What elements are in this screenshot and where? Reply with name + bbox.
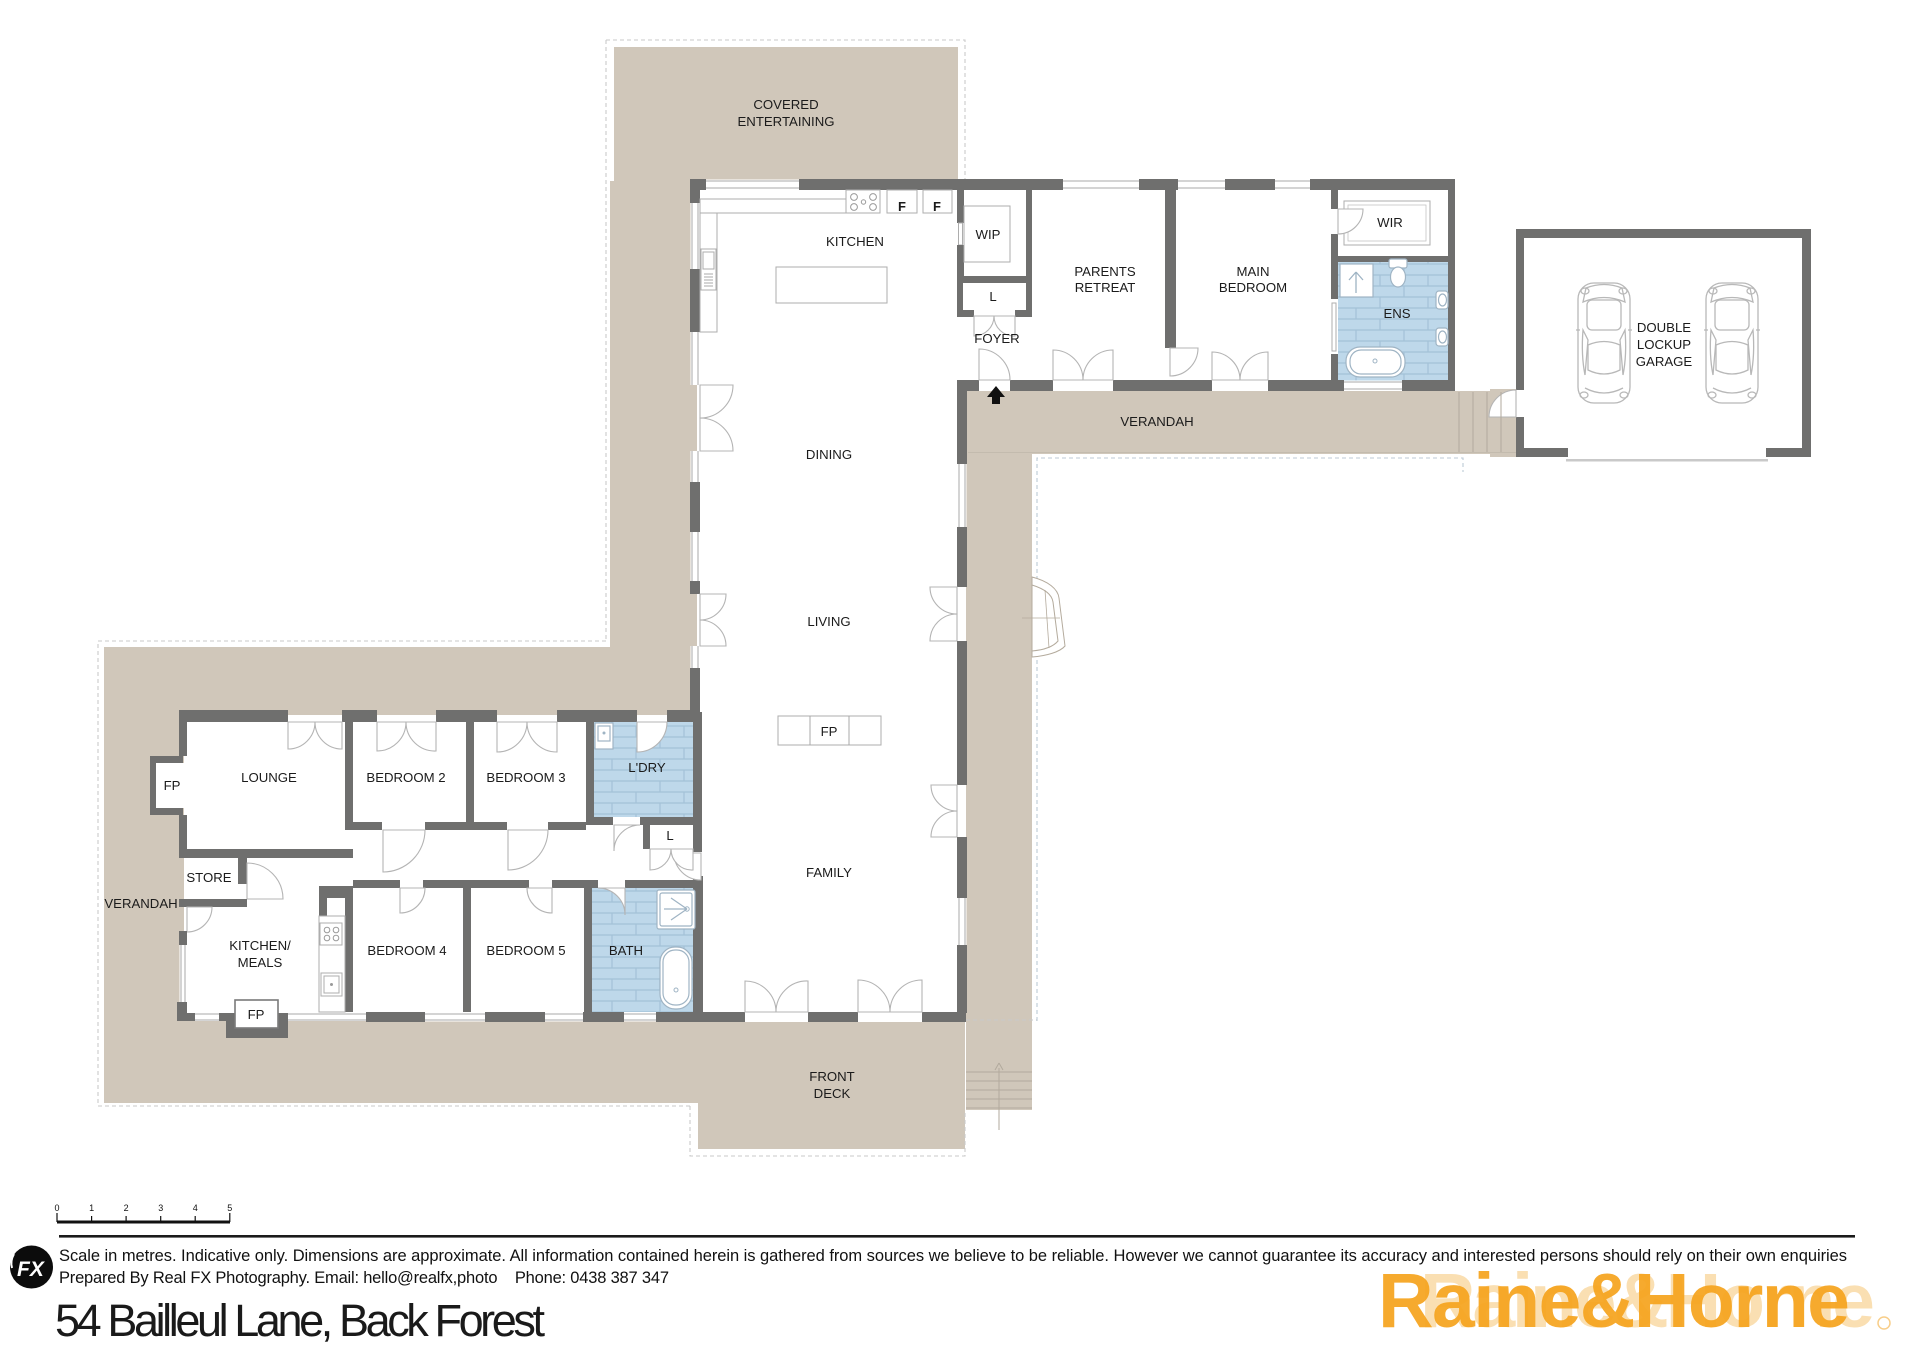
svg-text:ENTERTAINING: ENTERTAINING [738,114,835,129]
svg-text:LIVING: LIVING [807,614,850,629]
svg-text:RETREAT: RETREAT [1075,280,1136,295]
svg-text:STORE: STORE [186,870,231,885]
svg-text:VERANDAH: VERANDAH [104,896,177,911]
svg-text:FP: FP [164,778,181,793]
svg-text:DINING: DINING [806,447,852,462]
svg-text:L: L [666,828,673,843]
svg-text:BEDROOM 2: BEDROOM 2 [366,770,445,785]
svg-text:MEALS: MEALS [238,955,283,970]
svg-text:2: 2 [124,1203,129,1213]
svg-text:MAIN: MAIN [1237,264,1270,279]
svg-text:ENS: ENS [1383,306,1410,321]
svg-text:LOUNGE: LOUNGE [241,770,297,785]
svg-text:FRONT: FRONT [809,1069,854,1084]
svg-text:FX: FX [17,1258,46,1281]
svg-text:VERANDAH: VERANDAH [1120,414,1193,429]
svg-text:FP: FP [248,1007,265,1022]
svg-text:DOUBLE: DOUBLE [1637,320,1691,335]
svg-text:BATH: BATH [609,943,643,958]
svg-text:PARENTS: PARENTS [1074,264,1136,279]
svg-text:DECK: DECK [814,1086,851,1101]
svg-text:FAMILY: FAMILY [806,865,852,880]
svg-text:COVERED: COVERED [753,97,818,112]
svg-text:54 Bailleul Lane, Back Forest: 54 Bailleul Lane, Back Forest [55,1295,545,1346]
svg-text:BEDROOM 4: BEDROOM 4 [367,943,446,958]
svg-text:L'DRY: L'DRY [628,760,666,775]
svg-text:5: 5 [227,1203,232,1213]
svg-text:FP: FP [821,724,838,739]
svg-text:WIR: WIR [1377,215,1403,230]
svg-text:4: 4 [193,1203,198,1213]
svg-text:GARAGE: GARAGE [1636,354,1693,369]
svg-text:Raine&Horne: Raine&Horne [1378,1258,1850,1344]
svg-text:BEDROOM: BEDROOM [1219,280,1287,295]
svg-text:0: 0 [54,1203,59,1213]
svg-text:BEDROOM 3: BEDROOM 3 [486,770,565,785]
svg-text:F: F [933,199,941,214]
svg-text:FOYER: FOYER [974,331,1019,346]
svg-text:WIP: WIP [976,227,1001,242]
svg-text:BEDROOM 5: BEDROOM 5 [486,943,565,958]
svg-text:L: L [989,289,996,304]
svg-text:KITCHEN/: KITCHEN/ [229,938,291,953]
svg-text:LOCKUP: LOCKUP [1637,337,1691,352]
svg-text:KITCHEN: KITCHEN [826,234,884,249]
svg-text:Prepared By Real FX Photograph: Prepared By Real FX Photography. Email: … [59,1269,669,1287]
svg-text:3: 3 [158,1203,163,1213]
svg-text:F: F [898,199,906,214]
svg-text:1: 1 [89,1203,94,1213]
